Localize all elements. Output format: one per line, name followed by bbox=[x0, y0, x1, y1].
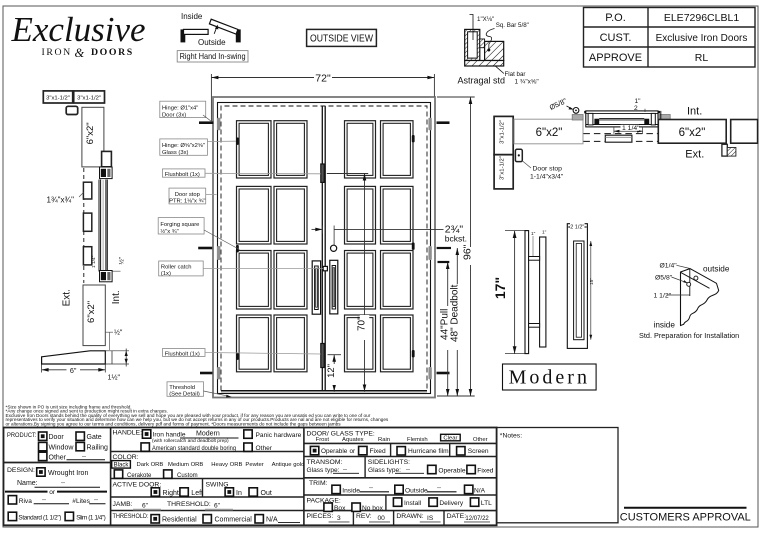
svg-text:Ø5/8": Ø5/8" bbox=[655, 274, 673, 281]
svg-text:Frost: Frost bbox=[316, 437, 330, 443]
svg-text:12/07/22: 12/07/22 bbox=[465, 516, 489, 522]
svg-text:½": ½" bbox=[114, 329, 123, 337]
svg-text:N/A: N/A bbox=[266, 517, 278, 524]
svg-text:Modern: Modern bbox=[196, 430, 220, 437]
svg-text:1 ¾"x⅝": 1 ¾"x⅝" bbox=[515, 79, 540, 86]
svg-text:PRODUCT:: PRODUCT: bbox=[7, 432, 37, 439]
svg-text:Glass (3x): Glass (3x) bbox=[162, 150, 188, 156]
svg-text:IS: IS bbox=[427, 515, 434, 522]
svg-text:In: In bbox=[236, 490, 242, 497]
svg-text:6"x2": 6"x2" bbox=[86, 301, 97, 323]
svg-text:6"x2": 6"x2" bbox=[85, 122, 96, 144]
svg-text:TRIM:: TRIM: bbox=[309, 480, 328, 487]
svg-text:inside: inside bbox=[654, 321, 676, 330]
svg-text:6"x2": 6"x2" bbox=[536, 127, 563, 139]
svg-text:6"x2": 6"x2" bbox=[679, 127, 706, 139]
svg-text:6": 6" bbox=[142, 502, 149, 509]
svg-text:96": 96" bbox=[461, 244, 473, 260]
svg-text:Right Hand In-swing: Right Hand In-swing bbox=[180, 51, 246, 61]
svg-text:1": 1" bbox=[531, 231, 536, 237]
svg-text:12": 12" bbox=[326, 364, 337, 378]
svg-text:Exclusive: Exclusive bbox=[11, 10, 146, 49]
svg-text:--: -- bbox=[343, 467, 347, 473]
svg-text:PTR: 1⅛"x ¾": PTR: 1⅛"x ¾" bbox=[169, 199, 205, 205]
svg-text:Railing: Railing bbox=[87, 445, 109, 452]
svg-text:N/A: N/A bbox=[474, 487, 486, 494]
svg-text:ELE7296CLBL1: ELE7296CLBL1 bbox=[664, 12, 739, 24]
svg-text:Antique gold: Antique gold bbox=[272, 462, 305, 468]
svg-text:Ext.: Ext. bbox=[685, 149, 704, 161]
svg-text:Int.: Int. bbox=[687, 106, 702, 118]
svg-text:Custom: Custom bbox=[177, 473, 198, 479]
svg-text:Other: Other bbox=[473, 437, 488, 443]
svg-text:Left: Left bbox=[191, 490, 203, 497]
svg-text:Slim (1 1/4"): Slim (1 1/4") bbox=[76, 514, 106, 521]
svg-text:Flushbolt (1x): Flushbolt (1x) bbox=[165, 172, 200, 178]
svg-text:Residential: Residential bbox=[162, 517, 197, 524]
svg-text:Door: Door bbox=[49, 434, 65, 441]
svg-text:2: 2 bbox=[634, 105, 638, 112]
svg-text:&: & bbox=[75, 46, 85, 60]
svg-text:Outside: Outside bbox=[198, 38, 226, 47]
svg-text:6": 6" bbox=[214, 502, 221, 509]
svg-text:Std. Preparation for Installat: Std. Preparation for Installation bbox=[639, 331, 739, 340]
svg-text:72": 72" bbox=[315, 73, 331, 85]
svg-text:½"x ¾": ½"x ¾" bbox=[160, 228, 178, 235]
svg-text:LTL: LTL bbox=[481, 500, 492, 507]
svg-text:Panic hardware: Panic hardware bbox=[256, 432, 302, 439]
svg-text:Modern: Modern bbox=[509, 367, 590, 389]
svg-text:Flemish: Flemish bbox=[407, 437, 428, 443]
svg-text:Screen: Screen bbox=[468, 448, 489, 455]
svg-text:CUSTOMERS APPROVAL: CUSTOMERS APPROVAL bbox=[620, 512, 751, 524]
svg-text:3"x1-1/2": 3"x1-1/2" bbox=[500, 156, 506, 180]
svg-text:3"x1-1/2": 3"x1-1/2" bbox=[500, 120, 506, 144]
svg-text:bckst.: bckst. bbox=[445, 234, 467, 244]
svg-text:Flushbolt (1x): Flushbolt (1x) bbox=[165, 352, 200, 358]
svg-text:--: -- bbox=[82, 454, 86, 460]
svg-text:Hinge: Ø1"x4": Hinge: Ø1"x4" bbox=[162, 105, 198, 111]
svg-text:or: or bbox=[49, 489, 56, 496]
svg-text:or: or bbox=[350, 448, 357, 455]
svg-text:Glass type:: Glass type: bbox=[307, 467, 340, 474]
svg-text:HANDLE:: HANDLE: bbox=[113, 430, 143, 437]
svg-text:Astragal std: Astragal std bbox=[458, 76, 506, 86]
svg-text:Riva: Riva bbox=[19, 498, 33, 505]
svg-text:Gate: Gate bbox=[87, 434, 102, 441]
svg-text:48" Deadbolt: 48" Deadbolt bbox=[449, 284, 460, 342]
svg-text:Ø1/4": Ø1/4" bbox=[660, 262, 678, 269]
svg-text:1-1/4"x3/4": 1-1/4"x3/4" bbox=[530, 174, 564, 181]
svg-text:1½": 1½" bbox=[108, 373, 121, 382]
svg-text:DRAWN:: DRAWN: bbox=[396, 513, 423, 520]
svg-text:JAMB:: JAMB: bbox=[113, 501, 133, 508]
svg-text:or alterations.By signing you: or alterations.By signing you agree to o… bbox=[6, 422, 342, 427]
svg-text:Standard (1 1/2"): Standard (1 1/2") bbox=[18, 514, 61, 521]
svg-text:Dark ORB: Dark ORB bbox=[137, 462, 164, 468]
svg-text:17": 17" bbox=[492, 277, 508, 299]
svg-text:Right: Right bbox=[163, 490, 179, 497]
svg-text:outside: outside bbox=[703, 265, 730, 274]
svg-text:Operable: Operable bbox=[438, 467, 465, 474]
svg-text:DATE:: DATE: bbox=[447, 513, 467, 520]
svg-text:3"x1-1/2": 3"x1-1/2" bbox=[46, 95, 70, 101]
svg-text:#Lites: #Lites bbox=[72, 498, 90, 505]
svg-text:Window: Window bbox=[49, 445, 75, 452]
svg-text:Ext.: Ext. bbox=[62, 289, 73, 306]
svg-text:P.O.: P.O. bbox=[605, 12, 626, 24]
svg-text:--: -- bbox=[61, 481, 65, 487]
svg-text:SIDELIGHTS:: SIDELIGHTS: bbox=[368, 459, 410, 466]
svg-text:Int.: Int. bbox=[111, 290, 122, 304]
svg-text:DOORS: DOORS bbox=[91, 47, 134, 58]
svg-text:IRON: IRON bbox=[42, 47, 72, 58]
svg-text:RL: RL bbox=[695, 52, 709, 64]
svg-text:1 1/4": 1 1/4" bbox=[622, 125, 640, 132]
svg-text:*Notes:: *Notes: bbox=[500, 432, 522, 439]
svg-text:Out: Out bbox=[261, 490, 272, 497]
svg-text:Heavy ORB: Heavy ORB bbox=[211, 462, 242, 468]
svg-text:--: -- bbox=[42, 498, 46, 504]
svg-text:Cerakote: Cerakote bbox=[127, 473, 152, 479]
svg-text:Fixed: Fixed bbox=[370, 448, 386, 455]
svg-text:1¾"x¾": 1¾"x¾" bbox=[47, 196, 75, 205]
svg-text:REV:: REV: bbox=[356, 513, 372, 520]
svg-text:OUTSIDE VIEW: OUTSIDE VIEW bbox=[310, 33, 373, 44]
svg-text:1": 1" bbox=[542, 230, 547, 236]
svg-text:Door stop: Door stop bbox=[533, 166, 563, 173]
svg-text:½": ½" bbox=[119, 257, 126, 264]
svg-text:Inside: Inside bbox=[342, 487, 360, 494]
svg-text:Rain: Rain bbox=[378, 437, 390, 443]
svg-text:Clear: Clear bbox=[443, 436, 457, 442]
svg-text:APPROVE: APPROVE bbox=[589, 52, 642, 64]
svg-text:THRESHOLD:: THRESHOLD: bbox=[167, 501, 211, 508]
svg-text:1 1/4": 1 1/4" bbox=[91, 255, 97, 268]
svg-text:Fixed: Fixed bbox=[477, 467, 493, 474]
svg-text:Forging square: Forging square bbox=[160, 222, 199, 228]
svg-text:6": 6" bbox=[70, 366, 77, 375]
svg-text:1"X⅛": 1"X⅛" bbox=[477, 16, 494, 23]
svg-text:TRANSOM:: TRANSOM: bbox=[307, 459, 343, 466]
svg-text:Sq. Bar 5/8": Sq. Bar 5/8" bbox=[496, 22, 529, 29]
svg-text:(1x): (1x) bbox=[161, 271, 171, 277]
svg-text:Name:: Name: bbox=[17, 480, 38, 487]
svg-text:2 1/2": 2 1/2" bbox=[570, 225, 584, 231]
svg-text:No box: No box bbox=[362, 505, 384, 512]
svg-text:Install: Install bbox=[404, 500, 422, 507]
svg-text:Hurricane film: Hurricane film bbox=[408, 448, 449, 455]
svg-text:Other: Other bbox=[256, 445, 273, 452]
svg-text:70": 70" bbox=[357, 316, 368, 331]
svg-text:Black: Black bbox=[114, 462, 130, 468]
svg-text:American standard double borin: American standard double boring bbox=[152, 445, 236, 452]
svg-text:THRESHOLD:: THRESHOLD: bbox=[113, 513, 149, 520]
svg-text:Box: Box bbox=[334, 505, 346, 512]
svg-text:PIECES:: PIECES: bbox=[307, 513, 334, 520]
svg-text:15": 15" bbox=[589, 278, 595, 285]
svg-text:00: 00 bbox=[378, 515, 386, 522]
svg-text:Aquatex: Aquatex bbox=[342, 437, 364, 443]
svg-text:Medium ORB: Medium ORB bbox=[168, 462, 203, 468]
svg-text:--: -- bbox=[437, 485, 441, 491]
svg-text:CUST.: CUST. bbox=[600, 32, 632, 44]
svg-text:Outside: Outside bbox=[405, 487, 428, 494]
svg-text:Door stop: Door stop bbox=[175, 192, 200, 198]
svg-text:Inside: Inside bbox=[181, 12, 203, 21]
svg-text:(See Detail): (See Detail) bbox=[169, 391, 200, 397]
svg-text:Other: Other bbox=[49, 454, 67, 461]
svg-text:1 1/2": 1 1/2" bbox=[654, 293, 672, 300]
svg-text:Delivery: Delivery bbox=[439, 500, 464, 507]
svg-text:Roller catch: Roller catch bbox=[161, 265, 192, 271]
svg-text:Threshold: Threshold bbox=[169, 385, 195, 391]
svg-text:--: -- bbox=[406, 467, 410, 473]
svg-text:DESIGN:: DESIGN: bbox=[7, 467, 35, 474]
svg-text:(with rollercatch and deadbolt: (with rollercatch and deadbolt prep) bbox=[152, 438, 229, 444]
svg-text:1": 1" bbox=[634, 98, 641, 105]
svg-text:Wrought Iron: Wrought Iron bbox=[48, 470, 88, 477]
svg-text:Pewter: Pewter bbox=[245, 462, 263, 468]
svg-text:Operable: Operable bbox=[321, 448, 348, 455]
svg-text:Door (3x): Door (3x) bbox=[162, 112, 186, 118]
svg-text:Hinge: Ø⅝"x2⅝": Hinge: Ø⅝"x2⅝" bbox=[162, 143, 205, 149]
svg-text:Glass type:: Glass type: bbox=[368, 467, 401, 474]
svg-text:3: 3 bbox=[337, 515, 341, 522]
svg-text:3"x1-1/2": 3"x1-1/2" bbox=[77, 95, 101, 101]
svg-text:Exclusive Iron Doors: Exclusive Iron Doors bbox=[656, 33, 748, 44]
svg-text:--: -- bbox=[94, 498, 98, 504]
svg-text:--: -- bbox=[369, 485, 373, 491]
svg-text:Flat bar: Flat bar bbox=[505, 71, 526, 78]
svg-text:Commercial: Commercial bbox=[215, 517, 253, 524]
